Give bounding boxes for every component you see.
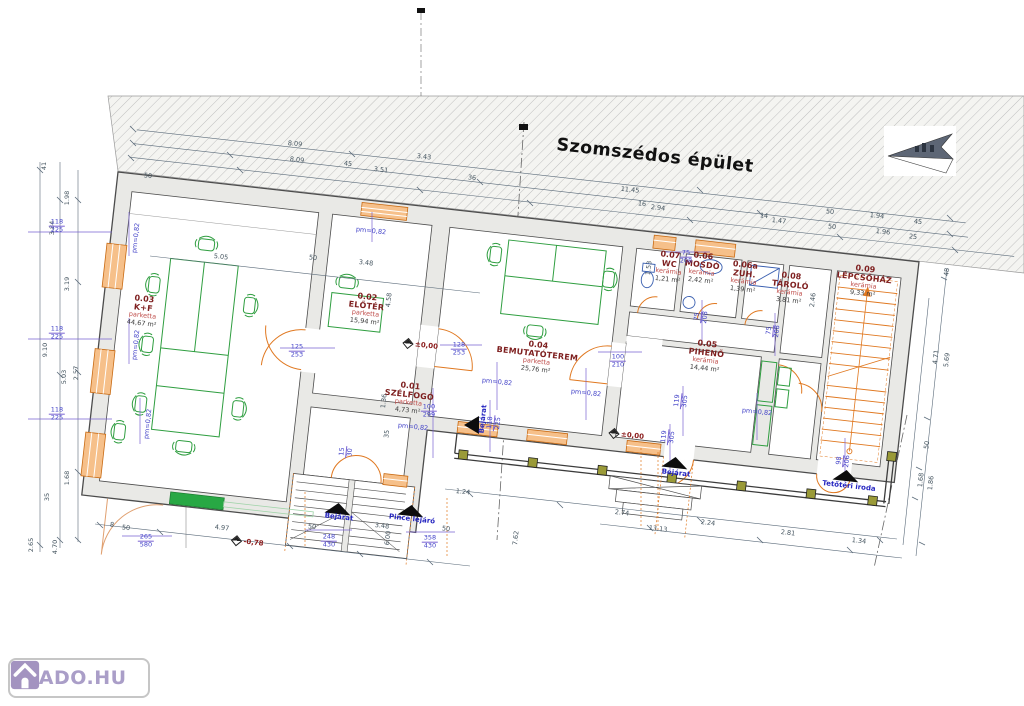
floorplan-drawing	[0, 0, 1024, 706]
floorplan-page: 0.03K+F parketta44,67 m²0.02ELŐTÉR parke…	[0, 0, 1024, 706]
kiado-logo: KIADO.HU	[8, 658, 150, 698]
north-arrow-icon	[884, 126, 956, 176]
kiado-logo-house-icon	[10, 660, 40, 690]
